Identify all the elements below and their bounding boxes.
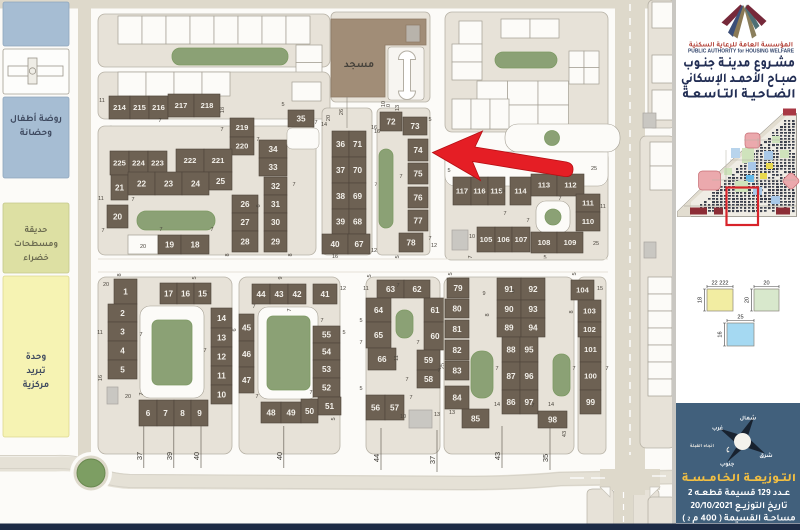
svg-text:7: 7 [437,368,440,374]
svg-text:7: 7 [252,304,255,310]
svg-text:8: 8 [180,409,185,418]
svg-text:30: 30 [271,218,281,227]
svg-text:41: 41 [320,290,330,299]
svg-text:18: 18 [190,240,200,249]
svg-text:8: 8 [288,253,294,256]
svg-text:10: 10 [217,390,227,399]
svg-text:32: 32 [271,182,281,191]
svg-text:11: 11 [97,330,103,336]
svg-text:45: 45 [242,323,252,332]
svg-text:111: 111 [582,199,595,208]
svg-text:113: 113 [538,181,550,190]
svg-text:6: 6 [256,204,262,207]
svg-text:33: 33 [268,163,278,172]
svg-text:18: 18 [220,107,226,113]
svg-text:22 222: 22 222 [711,281,728,287]
svg-text:99: 99 [586,398,596,407]
svg-text:80: 80 [452,304,462,313]
svg-text:20: 20 [763,281,769,287]
svg-text:12: 12 [371,248,377,254]
svg-text:216: 216 [152,103,165,112]
svg-text:7: 7 [526,218,529,224]
svg-text:39: 39 [336,217,346,226]
svg-text:47: 47 [242,376,252,385]
svg-text:43: 43 [274,290,284,299]
svg-text:7: 7 [572,366,575,372]
svg-text:37: 37 [336,166,346,175]
svg-text:77: 77 [413,216,423,225]
svg-text:109: 109 [564,238,577,247]
svg-text:56: 56 [371,403,381,412]
svg-text:6: 6 [146,409,151,418]
svg-text:79: 79 [453,284,463,293]
svg-text:11: 11 [98,196,104,202]
svg-text:36: 36 [336,140,346,149]
svg-text:5: 5 [192,276,198,279]
svg-text:219: 219 [236,123,249,132]
svg-text:5: 5 [342,330,345,336]
svg-text:215: 215 [133,103,146,112]
svg-text:16: 16 [98,375,104,381]
svg-text:40: 40 [330,240,340,249]
svg-text:62: 62 [412,285,422,294]
svg-text:116: 116 [473,187,485,196]
svg-text:7: 7 [531,403,534,409]
svg-text:84: 84 [452,393,462,402]
svg-text:5: 5 [428,117,431,123]
svg-text:14: 14 [321,122,327,128]
svg-text:104: 104 [576,286,589,295]
svg-text:11: 11 [363,286,369,292]
svg-text:7: 7 [159,227,162,233]
svg-text:53: 53 [322,365,332,374]
svg-text:86: 86 [506,398,516,407]
svg-text:13: 13 [217,333,227,342]
svg-text:38: 38 [336,192,346,201]
svg-text:22: 22 [137,179,147,188]
svg-text:95: 95 [524,345,534,354]
svg-text:5: 5 [395,255,401,258]
svg-text:82: 82 [452,346,462,355]
svg-text:51: 51 [325,402,335,411]
svg-text:74: 74 [413,146,423,155]
svg-text:6: 6 [232,328,238,331]
svg-text:2: 2 [120,309,125,318]
svg-text:20: 20 [326,115,332,121]
svg-text:57: 57 [390,403,400,412]
svg-text:13: 13 [449,410,455,416]
svg-text:65: 65 [374,331,384,340]
svg-text:107: 107 [515,235,528,244]
svg-text:19: 19 [165,240,175,249]
svg-text:5: 5 [572,272,578,275]
svg-text:66: 66 [377,355,387,364]
svg-text:20: 20 [745,297,751,303]
svg-text:44: 44 [372,454,381,462]
svg-text:221: 221 [212,156,225,165]
svg-text:72: 72 [386,117,396,126]
svg-text:7: 7 [396,283,399,289]
svg-text:220: 220 [236,142,249,151]
svg-text:5: 5 [543,255,546,261]
svg-text:67: 67 [354,240,364,249]
svg-text:11: 11 [99,98,105,104]
svg-text:64: 64 [374,306,384,315]
svg-text:9: 9 [511,289,514,295]
svg-text:7: 7 [220,127,223,133]
svg-text:112: 112 [564,181,576,190]
svg-text:37: 37 [135,452,144,460]
svg-text:73: 73 [410,122,420,131]
svg-text:8: 8 [485,313,491,316]
svg-text:27: 27 [240,218,250,227]
svg-text:26: 26 [339,109,345,115]
svg-text:75: 75 [413,169,423,178]
svg-text:17: 17 [164,289,174,298]
svg-text:7: 7 [139,332,142,338]
svg-text:37: 37 [428,456,437,464]
svg-text:5: 5 [447,168,450,174]
svg-text:7: 7 [314,120,317,126]
svg-text:54: 54 [322,347,332,356]
svg-text:4: 4 [120,346,125,355]
svg-text:5: 5 [281,102,284,108]
svg-text:7: 7 [287,308,293,311]
svg-text:15: 15 [597,286,603,292]
svg-text:63: 63 [386,285,396,294]
svg-text:40: 40 [192,452,201,460]
svg-text:8: 8 [569,310,575,313]
svg-text:9: 9 [482,291,485,297]
svg-text:46: 46 [242,350,252,359]
svg-text:7: 7 [409,395,412,401]
svg-text:43: 43 [562,431,568,437]
svg-text:7: 7 [203,348,206,354]
svg-text:93: 93 [528,305,538,314]
svg-text:94: 94 [528,323,538,332]
svg-text:8: 8 [117,273,123,276]
svg-text:117: 117 [456,187,468,196]
svg-text:10: 10 [381,101,387,107]
svg-text:50: 50 [305,407,315,416]
svg-text:7: 7 [320,318,323,324]
svg-text:39: 39 [165,452,174,460]
svg-text:13: 13 [434,412,440,418]
svg-text:3: 3 [120,327,125,336]
svg-text:7: 7 [139,392,145,395]
svg-text:7: 7 [131,197,134,203]
svg-text:7: 7 [503,211,506,217]
svg-text:98: 98 [548,415,558,424]
svg-text:5: 5 [120,365,125,374]
svg-text:10: 10 [469,234,475,240]
svg-text:96: 96 [524,372,534,381]
svg-text:29: 29 [271,237,281,246]
svg-text:7: 7 [158,118,161,124]
svg-text:102: 102 [583,325,596,334]
svg-text:35: 35 [541,454,550,462]
svg-text:7: 7 [605,366,608,372]
svg-text:7: 7 [101,228,104,234]
svg-text:101: 101 [584,345,597,354]
svg-text:16: 16 [374,129,380,135]
svg-text:106: 106 [497,235,510,244]
svg-text:92: 92 [528,285,538,294]
svg-text:16: 16 [718,331,724,337]
svg-text:25: 25 [593,241,599,247]
svg-text:223: 223 [151,159,164,168]
svg-text:23: 23 [164,179,174,188]
svg-text:5: 5 [359,318,362,324]
svg-text:20: 20 [140,244,146,250]
svg-text:28: 28 [240,237,250,246]
svg-text:7: 7 [468,255,474,258]
svg-text:20: 20 [103,282,109,288]
svg-text:7: 7 [416,340,419,346]
svg-text:8: 8 [225,253,231,256]
svg-text:5: 5 [331,417,337,420]
svg-text:44: 44 [256,290,266,299]
svg-text:5: 5 [367,274,373,277]
svg-text:85: 85 [471,414,481,423]
svg-text:6: 6 [501,189,507,192]
svg-text:61: 61 [430,306,440,315]
svg-text:108: 108 [538,238,551,247]
svg-text:105: 105 [480,235,493,244]
svg-text:222: 222 [184,156,197,165]
svg-text:14: 14 [217,314,227,323]
svg-text:PUBLIC AUTHORITY for HOUSING W: PUBLIC AUTHORITY for HOUSING WELFARE [688,49,795,55]
svg-text:225: 225 [113,159,126,168]
svg-text:70: 70 [353,166,363,175]
svg-text:20: 20 [125,394,131,400]
svg-text:55: 55 [322,330,332,339]
svg-text:87: 87 [506,372,516,381]
svg-text:110: 110 [582,217,594,226]
svg-text:40: 40 [275,452,284,460]
svg-text:60: 60 [430,332,440,341]
svg-text:7: 7 [428,236,431,242]
svg-text:34: 34 [268,145,278,154]
svg-text:14: 14 [548,402,554,408]
svg-text:7: 7 [309,390,312,396]
svg-text:90: 90 [504,305,514,314]
svg-text:26: 26 [240,200,250,209]
svg-text:224: 224 [132,159,145,168]
svg-text:214: 214 [113,103,126,112]
svg-text:48: 48 [266,408,276,417]
svg-text:7: 7 [292,182,295,188]
svg-text:7: 7 [399,174,402,180]
svg-text:114: 114 [514,187,527,196]
svg-text:7: 7 [163,409,168,418]
svg-text:21: 21 [115,183,125,192]
svg-text:78: 78 [406,238,416,247]
svg-text:5: 5 [359,386,362,392]
svg-text:18: 18 [698,297,704,303]
svg-text:7: 7 [405,377,408,383]
svg-text:217: 217 [175,101,188,110]
svg-text:12: 12 [431,243,437,249]
svg-text:9: 9 [197,409,202,418]
svg-text:14: 14 [494,402,500,408]
svg-text:49: 49 [286,408,296,417]
svg-text:31: 31 [271,200,281,209]
svg-text:100: 100 [584,372,597,381]
svg-text:7: 7 [495,366,498,372]
svg-text:71: 71 [353,140,363,149]
svg-text:88: 88 [506,345,516,354]
svg-text:69: 69 [353,192,363,201]
svg-text:25: 25 [591,166,597,172]
svg-text:76: 76 [413,193,423,202]
svg-text:12: 12 [340,286,346,292]
svg-text:7: 7 [205,292,208,298]
svg-text:52: 52 [322,383,332,392]
svg-text:81: 81 [452,325,462,334]
svg-text:43: 43 [493,452,502,460]
svg-text:89: 89 [504,323,514,332]
svg-text:11: 11 [394,355,400,361]
svg-text:24: 24 [191,179,201,188]
svg-text:83: 83 [452,366,462,375]
svg-text:35: 35 [296,114,306,123]
svg-text:59: 59 [424,356,434,365]
svg-text:12: 12 [217,352,227,361]
svg-text:9: 9 [278,276,284,279]
svg-text:7: 7 [210,227,213,233]
svg-text:16: 16 [181,289,191,298]
svg-text:42: 42 [292,290,302,299]
svg-text:20: 20 [113,212,123,221]
svg-text:103: 103 [583,307,596,316]
svg-text:7: 7 [359,340,362,346]
svg-text:11: 11 [217,371,226,380]
svg-text:68: 68 [353,217,363,226]
svg-text:7: 7 [255,394,258,400]
svg-text:5: 5 [448,272,454,275]
svg-text:218: 218 [201,101,214,110]
svg-text:11: 11 [600,204,606,210]
svg-text:25: 25 [737,315,743,321]
svg-text:25: 25 [216,177,226,186]
svg-text:10: 10 [400,414,406,420]
svg-text:13: 13 [395,105,401,111]
svg-text:1: 1 [123,287,128,296]
svg-text:58: 58 [424,375,434,384]
